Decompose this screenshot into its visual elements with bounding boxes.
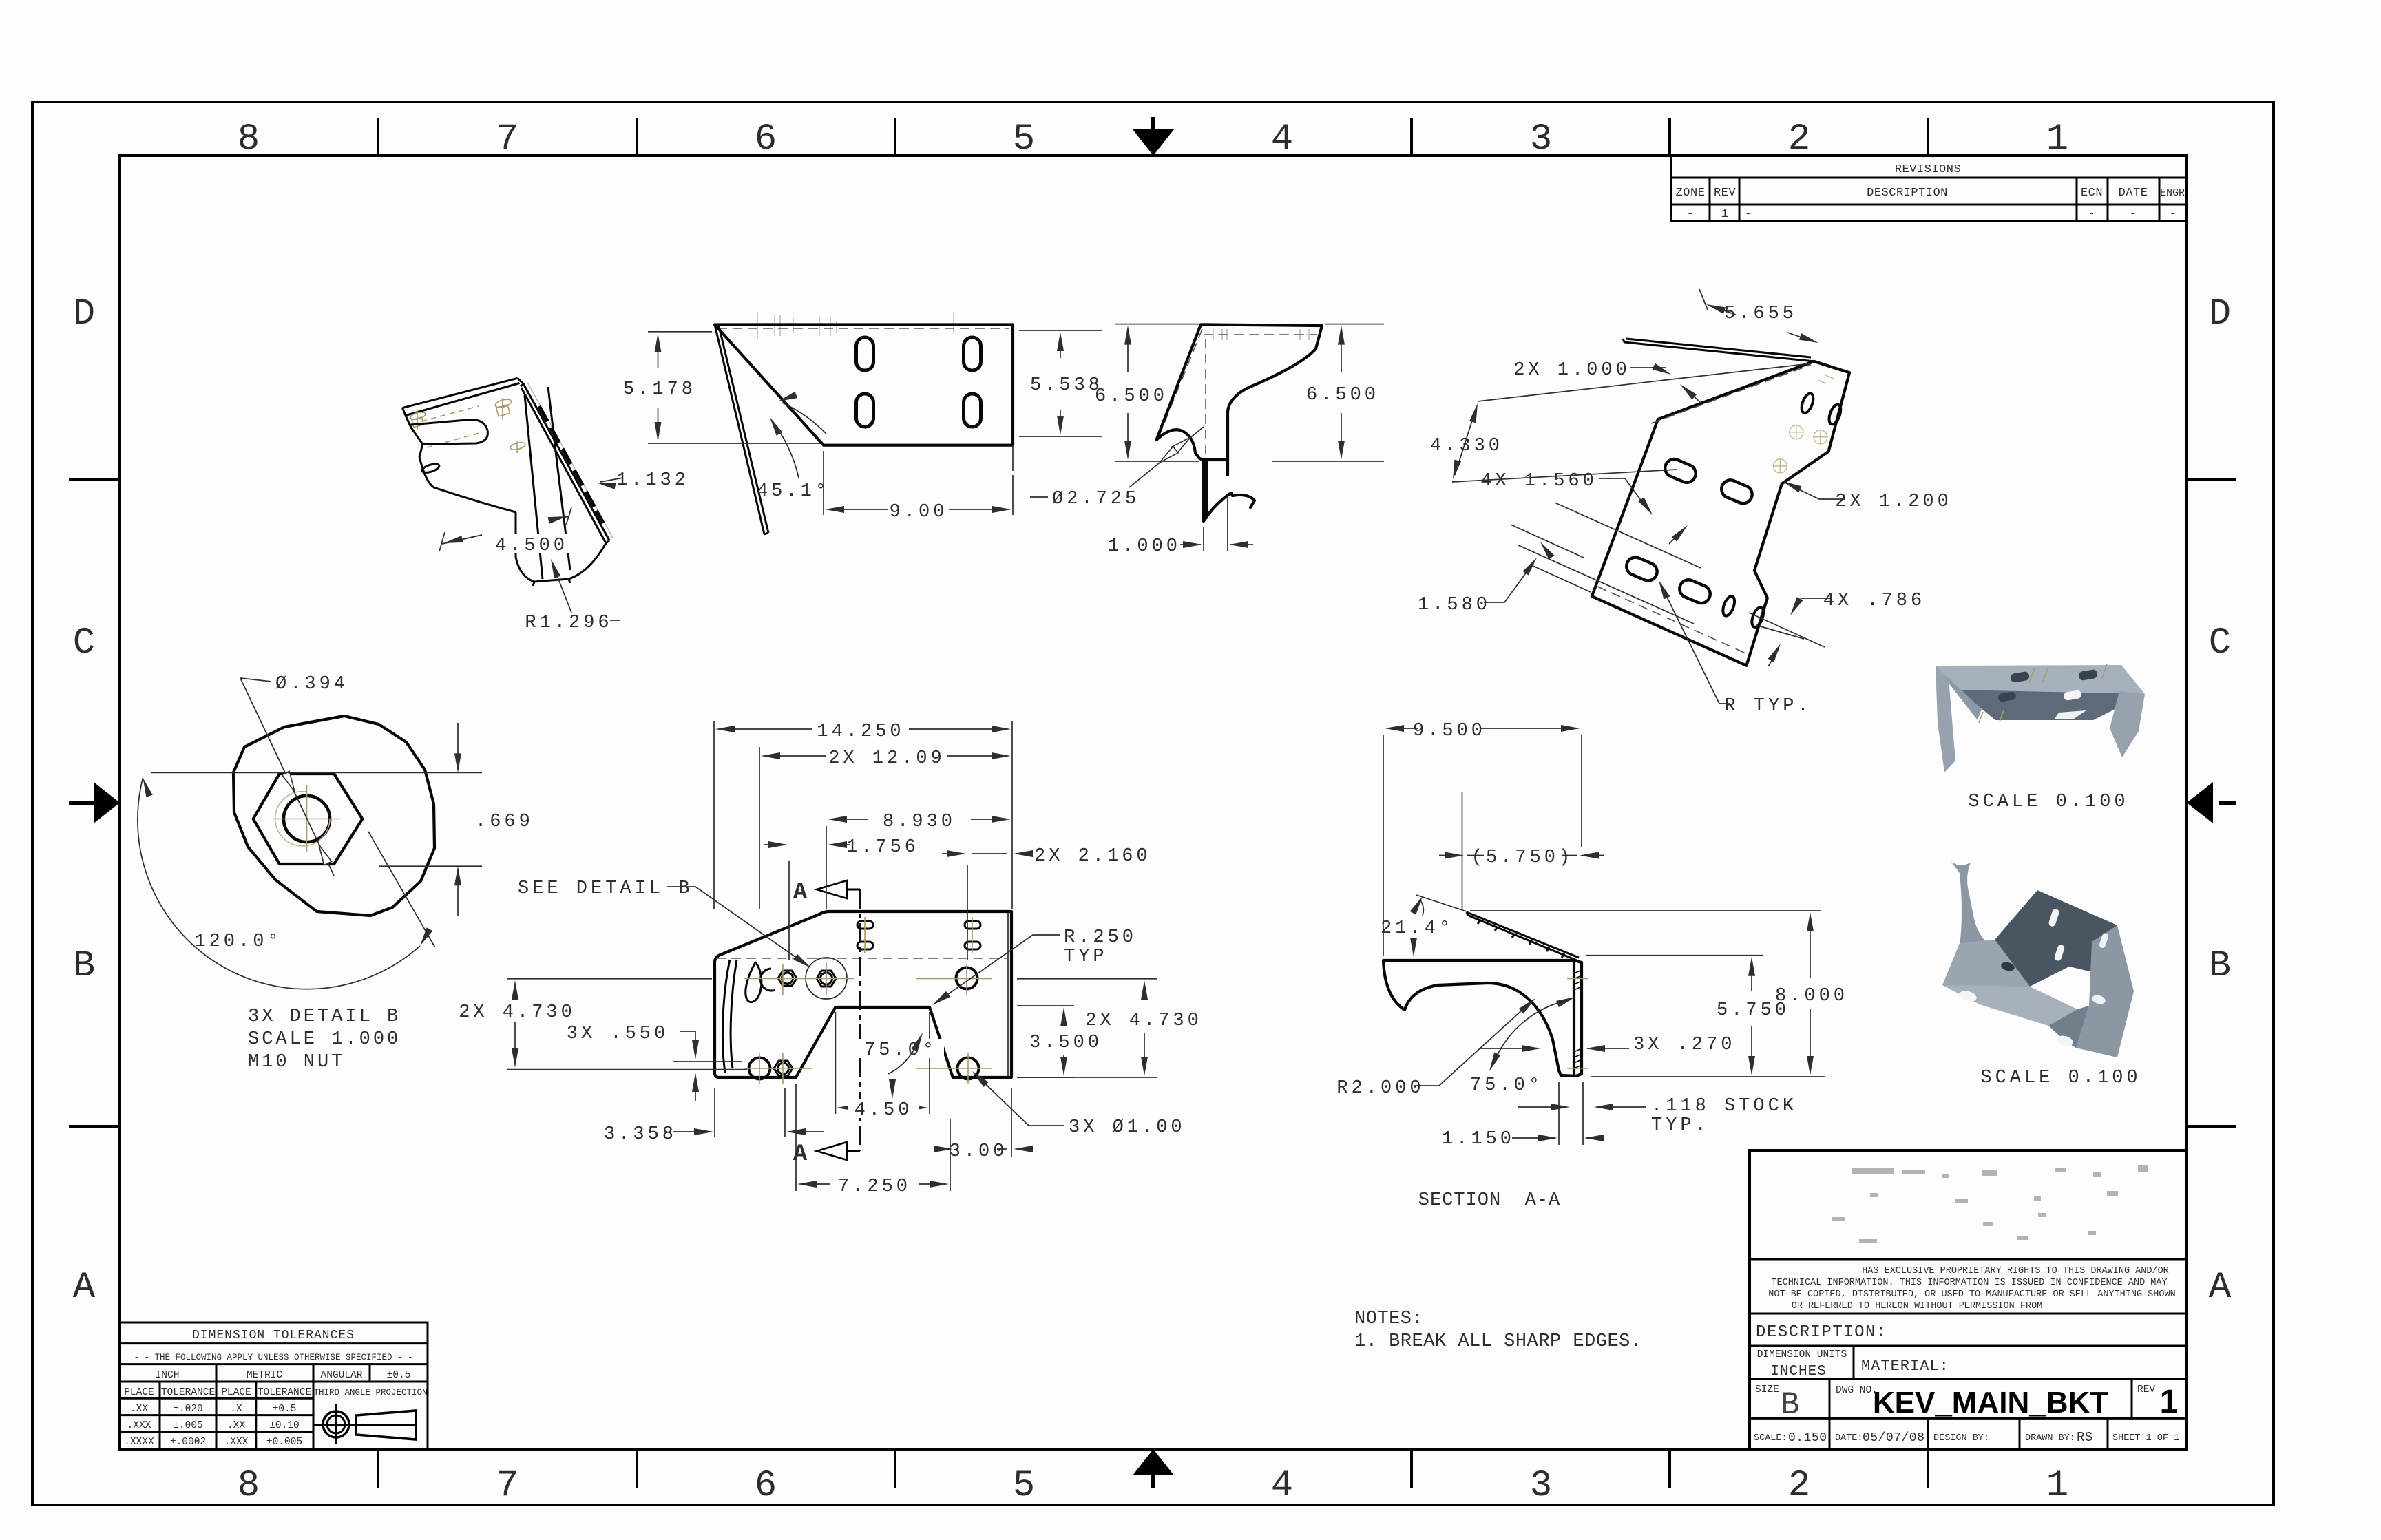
svg-text:5: 5 (1013, 1465, 1035, 1507)
svg-text:5.178: 5.178 (623, 379, 696, 400)
svg-text:TYP: TYP (1064, 947, 1108, 967)
svg-text:-: - (2088, 208, 2096, 221)
svg-text:1. BREAK ALL SHARP EDGES.: 1. BREAK ALL SHARP EDGES. (1354, 1331, 1642, 1352)
svg-text:SEE DETAIL B: SEE DETAIL B (518, 878, 693, 899)
svg-text:B: B (2209, 945, 2231, 987)
svg-text:D: D (2209, 293, 2231, 335)
svg-text:2: 2 (1788, 1465, 1810, 1507)
svg-text:.XXX: .XXX (127, 1420, 151, 1431)
svg-text:7.250: 7.250 (838, 1177, 911, 1197)
svg-text:SIZE: SIZE (1755, 1384, 1779, 1395)
svg-text:2X 1.000: 2X 1.000 (1513, 360, 1630, 381)
svg-text:MATERIAL:: MATERIAL: (1861, 1358, 1949, 1375)
svg-text:3X Ø1.00: 3X Ø1.00 (1069, 1117, 1186, 1138)
svg-text:OR REFERRED TO HEREON WITHOUT: OR REFERRED TO HEREON WITHOUT PERMISSION… (1792, 1301, 2043, 1311)
svg-text:3: 3 (1530, 1465, 1552, 1507)
svg-text:4X .786: 4X .786 (1823, 591, 1925, 611)
svg-text:-: - (1745, 208, 1752, 221)
svg-text:.XXXX: .XXXX (124, 1437, 154, 1448)
svg-text:SCALE 0.100: SCALE 0.100 (1968, 792, 2128, 812)
svg-text:±.020: ±.020 (173, 1404, 203, 1415)
svg-text:3X DETAIL B: 3X DETAIL B (248, 1006, 401, 1027)
svg-text:R1.296: R1.296 (525, 613, 612, 633)
svg-text:SHEET 1 OF 1: SHEET 1 OF 1 (2112, 1433, 2179, 1444)
svg-text:1.580: 1.580 (1418, 595, 1491, 615)
svg-text:1: 1 (2160, 1384, 2179, 1420)
svg-text:1: 1 (1721, 208, 1729, 221)
svg-text:C: C (73, 622, 95, 664)
svg-text:±.0002: ±.0002 (170, 1437, 206, 1448)
svg-text:SCALE 1.000: SCALE 1.000 (248, 1029, 401, 1050)
svg-text:- - THE FOLLOWING APPLY UNLESS: - - THE FOLLOWING APPLY UNLESS OTHERWISE… (134, 1353, 412, 1362)
svg-text:.XX: .XX (227, 1420, 245, 1431)
svg-text:.XX: .XX (130, 1404, 148, 1415)
svg-text:-: - (2130, 208, 2137, 221)
svg-text:2X 2.160: 2X 2.160 (1034, 846, 1151, 867)
svg-text:-: - (1687, 208, 1695, 221)
svg-text:1.132: 1.132 (616, 470, 689, 491)
svg-text:5.538: 5.538 (1030, 375, 1103, 396)
svg-text:3: 3 (1530, 118, 1552, 160)
svg-text:-: - (2170, 208, 2177, 221)
svg-text:8: 8 (238, 1465, 260, 1507)
svg-text:DESCRIPTION: DESCRIPTION (1867, 187, 1948, 200)
svg-text:SCALE 0.100: SCALE 0.100 (1980, 1068, 2141, 1088)
svg-text:9.500: 9.500 (1413, 721, 1486, 741)
svg-text:±0.10: ±0.10 (269, 1420, 300, 1431)
svg-text:±0.005: ±0.005 (266, 1437, 302, 1448)
svg-text:M10 NUT: M10 NUT (248, 1052, 345, 1073)
svg-text:DESIGN BY:: DESIGN BY: (1933, 1433, 1989, 1444)
svg-text:±0.5: ±0.5 (273, 1404, 297, 1415)
svg-text:TYP.: TYP. (1651, 1115, 1710, 1136)
svg-text:ENGR: ENGR (2160, 187, 2185, 199)
svg-text:4X 1.560: 4X 1.560 (1480, 471, 1597, 492)
svg-text:METRIC: METRIC (247, 1370, 283, 1381)
svg-text:.118 STOCK: .118 STOCK (1651, 1096, 1797, 1117)
svg-text:INCH: INCH (156, 1370, 180, 1381)
svg-text:2X 4.730: 2X 4.730 (459, 1002, 576, 1023)
svg-text:A: A (73, 1267, 96, 1309)
svg-text:DIMENSION UNITS: DIMENSION UNITS (1757, 1349, 1847, 1360)
svg-text:75.0°: 75.0° (864, 1040, 937, 1061)
svg-text:Ø2.725: Ø2.725 (1052, 489, 1140, 509)
svg-text:ANGULAR: ANGULAR (321, 1370, 363, 1381)
svg-text:4: 4 (1271, 1465, 1293, 1507)
svg-text:REV: REV (2137, 1384, 2155, 1395)
svg-text:120.0°: 120.0° (194, 931, 282, 952)
svg-text:1.756: 1.756 (846, 837, 919, 858)
svg-text:4.50: 4.50 (854, 1100, 913, 1121)
svg-text:6: 6 (755, 118, 777, 160)
svg-text:2X 12.09: 2X 12.09 (828, 748, 945, 769)
svg-text:2X 1.200: 2X 1.200 (1835, 492, 1952, 512)
svg-text:R TYP.: R TYP. (1724, 696, 1812, 717)
svg-text:75.0°: 75.0° (1470, 1075, 1543, 1096)
svg-text:7: 7 (496, 118, 518, 160)
svg-text:REV: REV (1714, 187, 1736, 200)
svg-text:8: 8 (238, 118, 260, 160)
svg-text:RS: RS (2077, 1430, 2093, 1445)
svg-text:REVISIONS: REVISIONS (1895, 163, 1961, 176)
svg-text:4.500: 4.500 (495, 536, 568, 556)
svg-text:ZONE: ZONE (1676, 187, 1706, 200)
svg-text:SCALE:: SCALE: (1754, 1433, 1787, 1444)
svg-text:8.930: 8.930 (883, 812, 956, 832)
svg-text:B: B (1781, 1387, 1800, 1423)
svg-text:05/07/08: 05/07/08 (1863, 1431, 1924, 1445)
svg-text:7: 7 (496, 1465, 518, 1507)
svg-text:R.250: R.250 (1064, 927, 1137, 948)
svg-text:B: B (73, 945, 95, 987)
svg-text:C: C (2209, 622, 2231, 664)
svg-text:.X: .X (230, 1404, 242, 1415)
svg-text:A: A (793, 1141, 808, 1168)
svg-text:3.500: 3.500 (1029, 1033, 1102, 1053)
svg-text:1: 1 (2046, 1465, 2068, 1507)
svg-text:45.1°: 45.1° (757, 481, 830, 502)
svg-text:21.4°: 21.4° (1381, 918, 1454, 939)
svg-text:2: 2 (1788, 118, 1810, 160)
svg-text:(5.750): (5.750) (1471, 847, 1573, 868)
svg-text:DATE:: DATE: (1835, 1433, 1863, 1444)
svg-text:6.500: 6.500 (1095, 386, 1168, 407)
svg-text:±0.5: ±0.5 (387, 1370, 411, 1381)
svg-text:TOLERANCE: TOLERANCE (258, 1387, 311, 1398)
svg-text:DESCRIPTION:: DESCRIPTION: (1756, 1323, 1887, 1342)
svg-text:6: 6 (755, 1465, 777, 1507)
svg-text:0.150: 0.150 (1788, 1431, 1827, 1445)
svg-text:A: A (2209, 1267, 2232, 1309)
svg-text:4: 4 (1271, 118, 1293, 160)
svg-text:3X .550: 3X .550 (567, 1024, 669, 1044)
svg-text:9.00: 9.00 (890, 502, 948, 523)
svg-text:NOT BE COPIED, DISTRIBUTED, OR: NOT BE COPIED, DISTRIBUTED, OR USED TO M… (1768, 1289, 2175, 1300)
svg-text:3.358: 3.358 (604, 1124, 677, 1145)
svg-text:3X .270: 3X .270 (1633, 1035, 1735, 1055)
svg-text:2X 4.730: 2X 4.730 (1085, 1011, 1202, 1031)
svg-text:SECTION A-A: SECTION A-A (1418, 1190, 1560, 1211)
svg-text:5: 5 (1013, 118, 1035, 160)
svg-text:1.150: 1.150 (1442, 1129, 1515, 1150)
svg-text:DRAWN BY:: DRAWN BY: (2025, 1433, 2075, 1444)
svg-text:.XXX: .XXX (224, 1437, 249, 1448)
svg-text:3.00: 3.00 (950, 1141, 1008, 1162)
svg-text:TOLERANCE: TOLERANCE (161, 1387, 215, 1398)
svg-text:R2.000: R2.000 (1336, 1078, 1424, 1099)
svg-text:D: D (73, 293, 95, 335)
svg-text:TECHNICAL INFORMATION. THIS I: TECHNICAL INFORMATION. THIS INFORMATION … (1771, 1278, 2167, 1288)
svg-text:A: A (793, 880, 808, 906)
svg-text:ECN: ECN (2081, 187, 2103, 200)
svg-text:DWG NO.: DWG NO. (1836, 1385, 1878, 1396)
svg-text:DATE: DATE (2119, 187, 2148, 200)
svg-text:PLACE: PLACE (221, 1387, 251, 1398)
svg-text:HAS EXCLUSIVE PROPRIETARY RIGH: HAS EXCLUSIVE PROPRIETARY RIGHTS TO THIS… (1862, 1266, 2169, 1276)
svg-text:.669: .669 (475, 812, 534, 832)
svg-text:Ø.394: Ø.394 (275, 674, 348, 695)
svg-text:6.500: 6.500 (1306, 385, 1379, 405)
svg-text:THIRD ANGLE PROJECTION: THIRD ANGLE PROJECTION (313, 1388, 427, 1397)
svg-text:KEV_MAIN_BKT: KEV_MAIN_BKT (1873, 1386, 2108, 1420)
svg-text:1: 1 (2046, 118, 2068, 160)
svg-text:PLACE: PLACE (124, 1387, 154, 1398)
svg-text:DIMENSION TOLERANCES: DIMENSION TOLERANCES (192, 1329, 355, 1342)
svg-text:14.250: 14.250 (817, 721, 904, 742)
svg-text:±.005: ±.005 (173, 1420, 203, 1431)
svg-text:8.000: 8.000 (1775, 986, 1848, 1006)
svg-text:1.000: 1.000 (1108, 536, 1181, 557)
svg-text:NOTES:: NOTES: (1354, 1309, 1423, 1329)
svg-text:INCHES: INCHES (1770, 1364, 1827, 1380)
